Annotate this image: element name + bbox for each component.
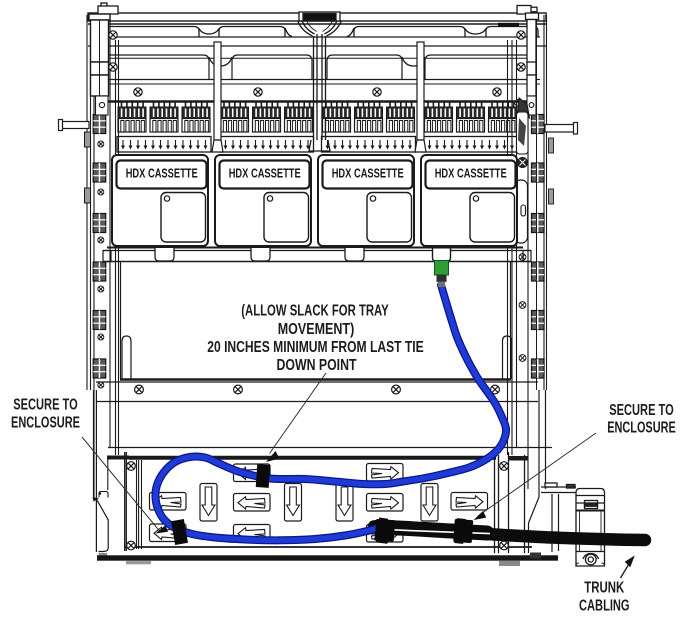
svg-text:TRUNK: TRUNK <box>584 580 624 597</box>
svg-text:ENCLOSURE: ENCLOSURE <box>607 420 676 437</box>
svg-text:HDX CASSETTE: HDX CASSETTE <box>332 165 404 180</box>
svg-text:20 INCHES MINIMUM FROM LAST TI: 20 INCHES MINIMUM FROM LAST TIE <box>207 339 424 356</box>
svg-text:(ALLOW SLACK FOR TRAY: (ALLOW SLACK FOR TRAY <box>241 303 389 320</box>
svg-text:HDX CASSETTE: HDX CASSETTE <box>126 165 198 180</box>
svg-text:SECURE TO: SECURE TO <box>609 402 674 419</box>
svg-text:HDX CASSETTE: HDX CASSETTE <box>435 165 507 180</box>
svg-text:MOVEMENT): MOVEMENT) <box>278 321 355 338</box>
svg-text:HDX CASSETTE: HDX CASSETTE <box>229 165 301 180</box>
svg-text:ENCLOSURE: ENCLOSURE <box>11 415 80 432</box>
svg-text:SECURE TO: SECURE TO <box>13 397 78 414</box>
svg-text:CABLING: CABLING <box>579 598 630 615</box>
svg-text:DOWN POINT: DOWN POINT <box>277 357 358 374</box>
